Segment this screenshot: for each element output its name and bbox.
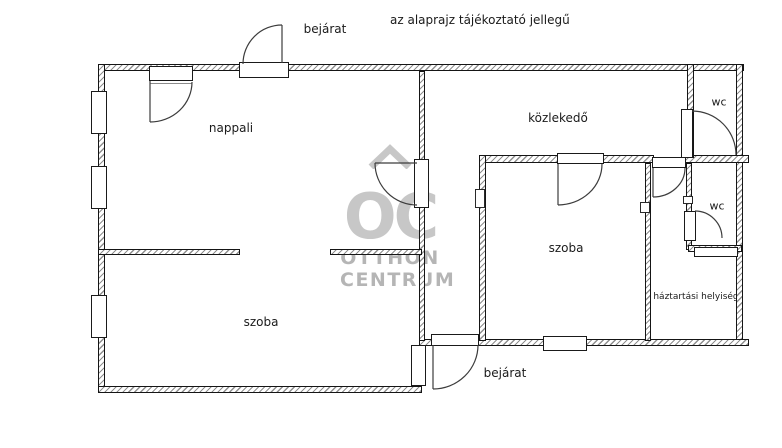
wall-exterior-bottom-left bbox=[98, 386, 422, 393]
room-label-szoba-left: szoba bbox=[244, 315, 279, 329]
wall-jog-szoba-right bbox=[640, 202, 650, 213]
watermark-line2: CENTRUM bbox=[340, 269, 440, 291]
wall-kozlekedo-szoba-b bbox=[602, 155, 654, 163]
wall-szoba-center-left bbox=[479, 155, 486, 341]
door-closet-nappali bbox=[149, 66, 193, 81]
wall-nappali-szoba-right bbox=[330, 249, 422, 255]
room-label-wc-top: wc bbox=[711, 96, 726, 109]
wall-jog-wc-strip bbox=[683, 196, 693, 204]
window-left-1 bbox=[91, 91, 107, 134]
wall-nappali-szoba-left bbox=[98, 249, 240, 255]
room-label-bejarat-bottom: bejárat bbox=[484, 366, 527, 380]
door-wc-haztartasi bbox=[694, 247, 738, 257]
door-entrance-top bbox=[239, 62, 289, 78]
window-left-2 bbox=[91, 166, 107, 209]
door-szoba-center bbox=[557, 153, 604, 164]
door-kozlekedo-strip bbox=[652, 157, 686, 168]
disclaimer-text: az alaprajz tájékoztató jellegű bbox=[390, 13, 570, 27]
wall-jog-szoba-left bbox=[475, 189, 485, 208]
door-szoba-notch bbox=[411, 345, 426, 386]
window-bottom-center bbox=[543, 336, 587, 351]
room-label-nappali: nappali bbox=[209, 121, 253, 135]
room-label-szoba-center: szoba bbox=[549, 241, 584, 255]
window-left-3 bbox=[91, 295, 107, 338]
room-label-bejarat-top: bejárat bbox=[304, 22, 347, 36]
door-wc-bottom bbox=[684, 211, 696, 241]
door-nappali-kozlekedo bbox=[414, 159, 429, 208]
room-label-haztartasi-helyiseg: háztartási helyiség bbox=[653, 292, 738, 302]
wall-szoba-center-right bbox=[645, 163, 651, 341]
floorplan-canvas: OC OTTHON CENTRUM az alaprajz tájékoztat… bbox=[0, 0, 782, 448]
wall-exterior-top bbox=[98, 64, 744, 71]
room-label-kozlekedo: közlekedő bbox=[528, 111, 588, 125]
wall-exterior-right bbox=[736, 64, 743, 346]
door-entrance-bottom bbox=[431, 334, 479, 346]
wall-kozlekedo-szoba-a bbox=[479, 155, 559, 163]
room-label-wc-middle: wc bbox=[709, 200, 724, 213]
closet-divider-line bbox=[150, 83, 192, 84]
door-wc-top bbox=[681, 109, 693, 158]
